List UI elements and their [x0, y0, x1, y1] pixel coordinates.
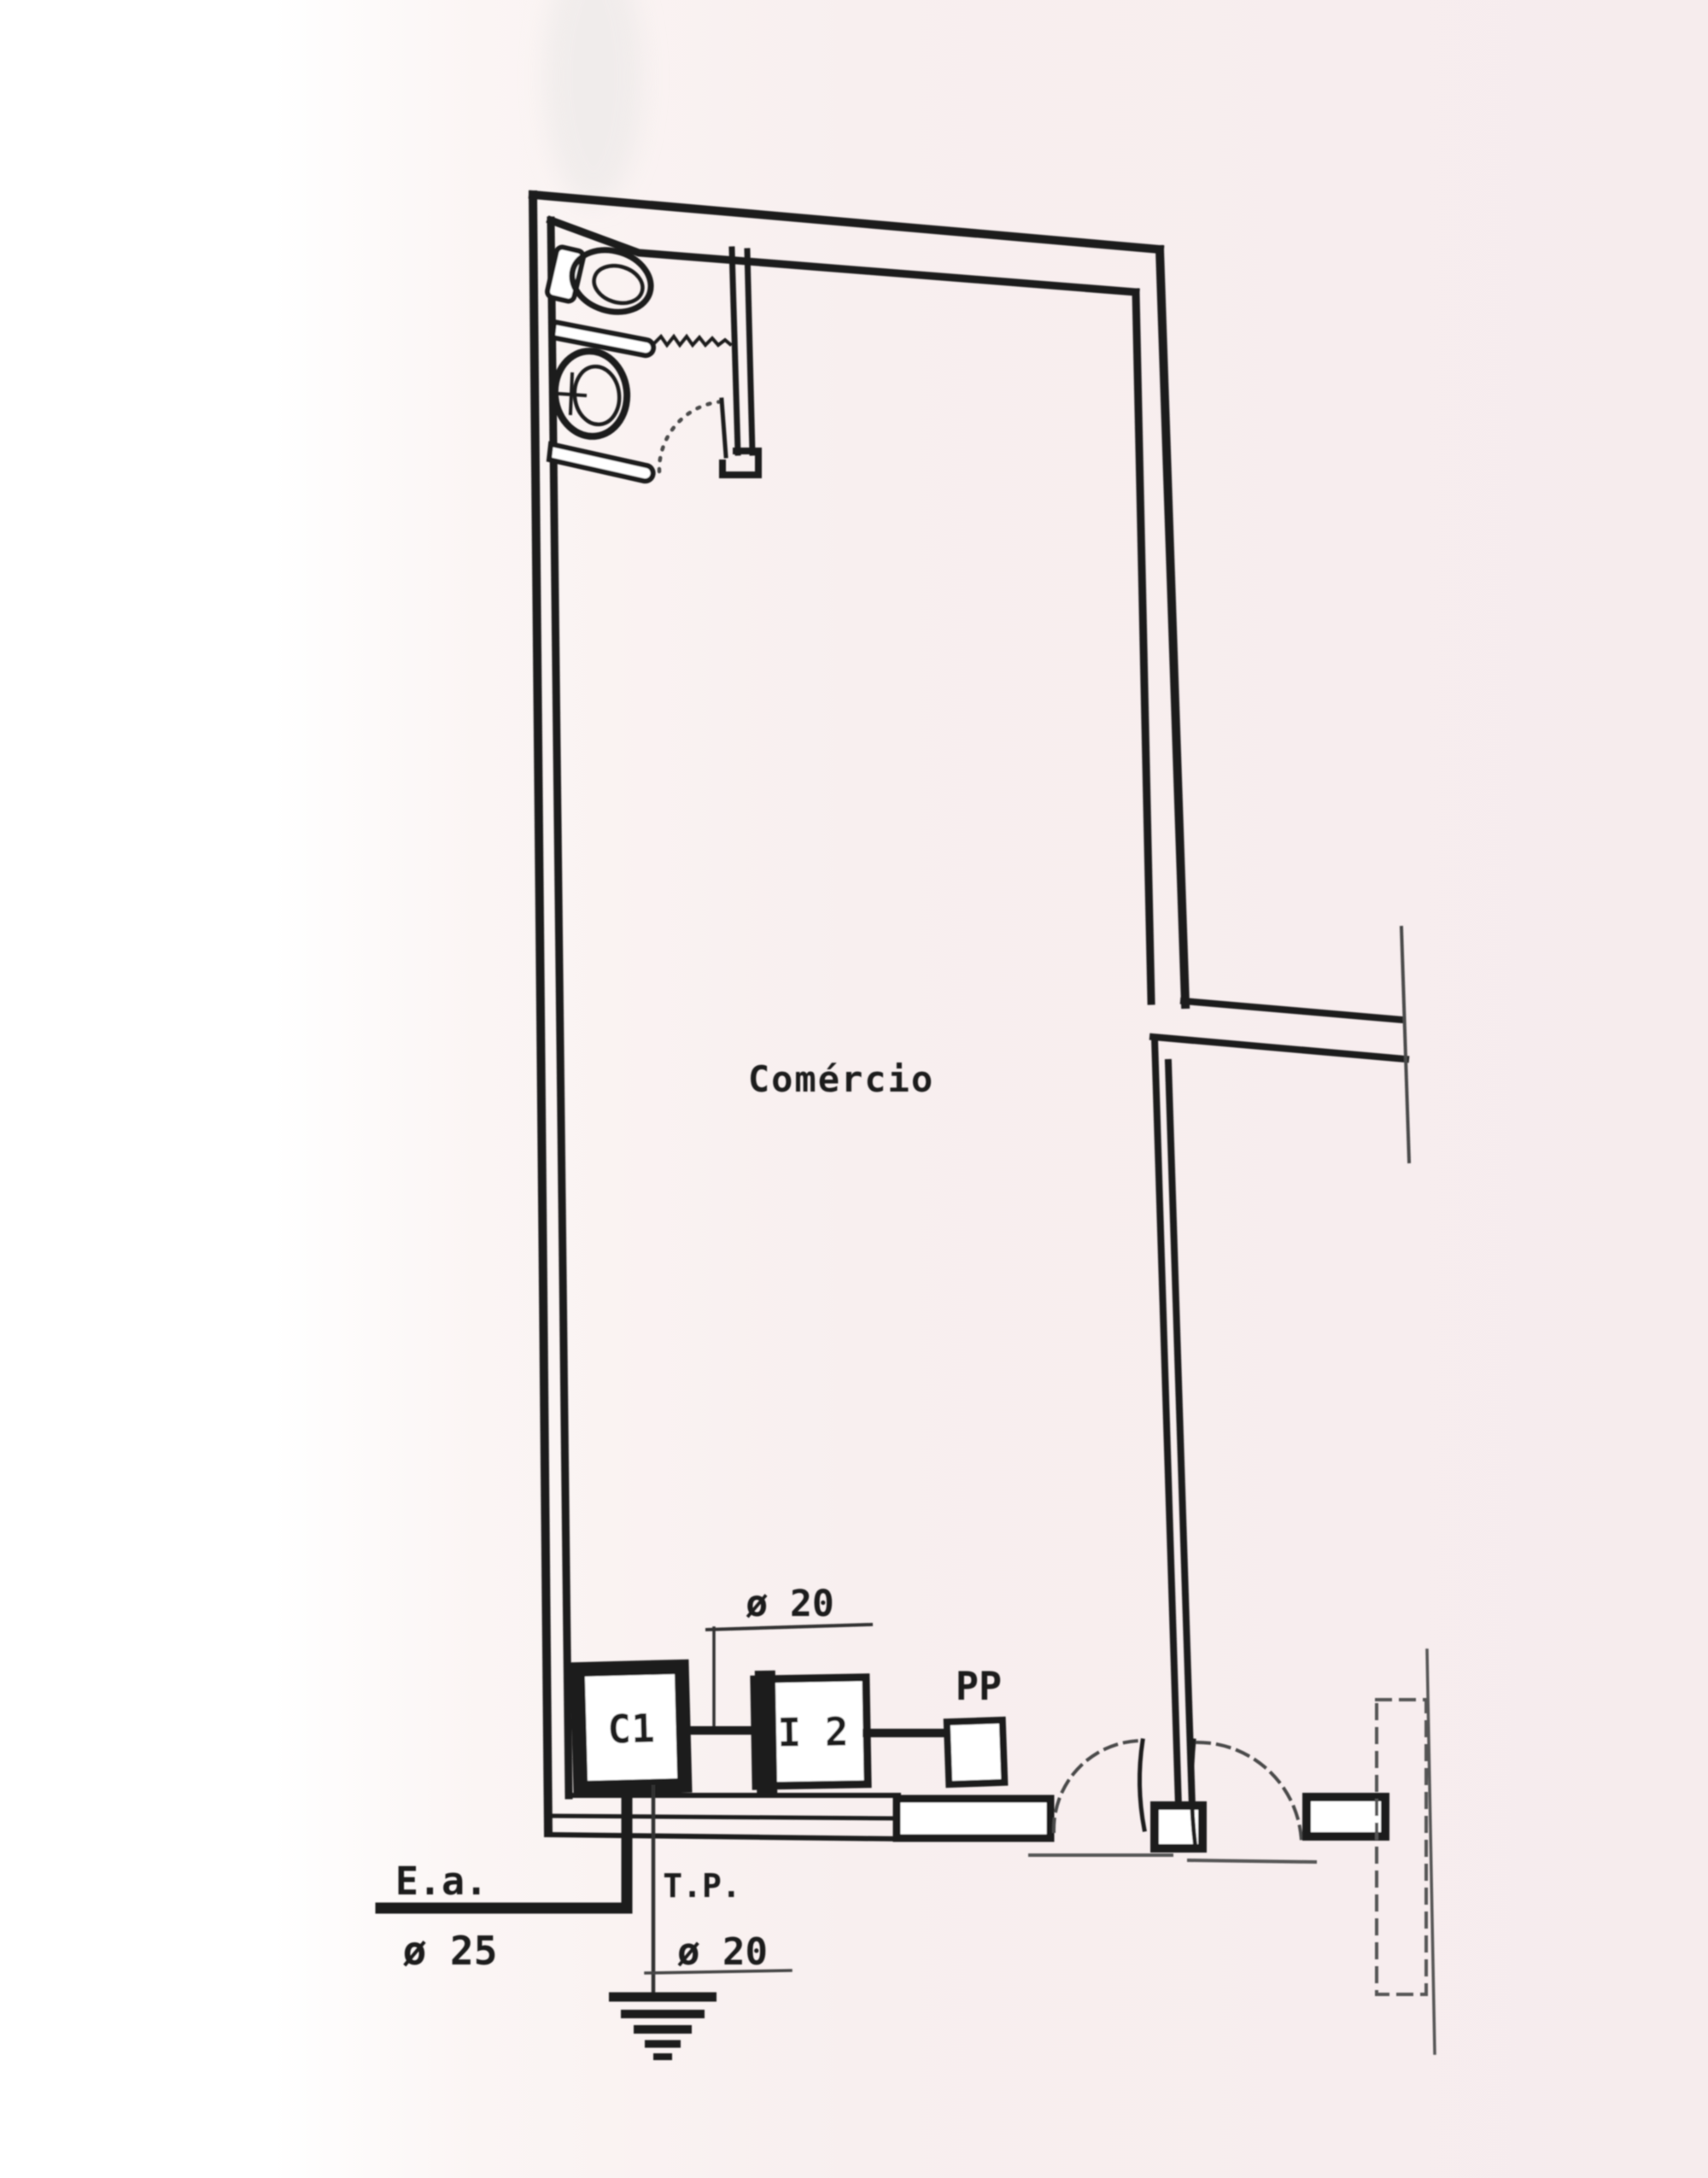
zigzag-break-line [654, 337, 730, 345]
dashed-projection-outline [1377, 1700, 1426, 1994]
sink-tap-mark [559, 374, 585, 413]
bathroom-bottom-wall [549, 444, 653, 481]
bathroom-door-arc [659, 401, 723, 471]
i2-box-left-bar [765, 1681, 767, 1784]
sink-icon [550, 347, 632, 440]
door-left-arc [1054, 1741, 1141, 1831]
right-wall-upper-inner-line [1136, 292, 1151, 1001]
right-branch-wall [1153, 928, 1409, 1162]
branch-wall-end-cap [1401, 928, 1409, 1162]
right-wall-lower-left-line [1155, 1039, 1179, 1807]
branch-wall-bottom-line [1153, 1037, 1406, 1059]
wc-wall-right-line [747, 251, 752, 453]
bathroom [547, 241, 758, 481]
i2-label: I 2 [777, 1708, 849, 1755]
ground-label: T.P. [663, 1867, 741, 1905]
upper-conduit-dimension-label: ø 20 [746, 1583, 834, 1625]
wc-wall-left-line [732, 249, 738, 453]
toilet-bowl-inner [589, 260, 647, 308]
door-right-arc [1197, 1742, 1301, 1841]
service-entry-size-label: ø 25 [403, 1928, 498, 1974]
top-wall-outer-line [533, 195, 1160, 249]
door-left-leaf [1139, 1741, 1144, 1830]
ground-symbol [609, 1997, 717, 2057]
service-entry-label: E.a. [395, 1859, 488, 1904]
left-wall-outer-line [533, 195, 548, 1833]
pp-box [947, 1720, 1005, 1784]
bathroom-door-jamb [722, 400, 726, 456]
pp-box-frame [947, 1720, 1005, 1784]
branch-wall-top-line [1184, 1001, 1402, 1020]
bottom-wall-line-bottom [549, 1835, 901, 1839]
window-sill-right [1307, 1797, 1385, 1836]
c1-label: C1 [607, 1705, 656, 1752]
projection-edge-line [1427, 1650, 1435, 2053]
dashed-projection [1377, 1650, 1435, 2053]
right-wall-upper-outer-line [1160, 249, 1185, 1004]
exterior-walls [533, 195, 1192, 1833]
pp-label: PP [956, 1664, 1002, 1709]
door-right-threshold [1189, 1860, 1315, 1862]
bottom-wall-line-mid [549, 1816, 898, 1818]
ground-size-label: ø 20 [677, 1930, 768, 1974]
room-label: Comércio [748, 1058, 934, 1100]
floor-plan-drawing: Comércio ø 20 C1 I 2 PP E.a. ø 25 T.P. ø… [0, 0, 1708, 2178]
top-wall-inner-line [551, 220, 1136, 292]
scan-streak-artifact [544, 0, 643, 205]
window-sill-left [897, 1799, 1050, 1838]
scanned-floor-plan-sheet: Comércio ø 20 C1 I 2 PP E.a. ø 25 T.P. ø… [0, 0, 1708, 2178]
